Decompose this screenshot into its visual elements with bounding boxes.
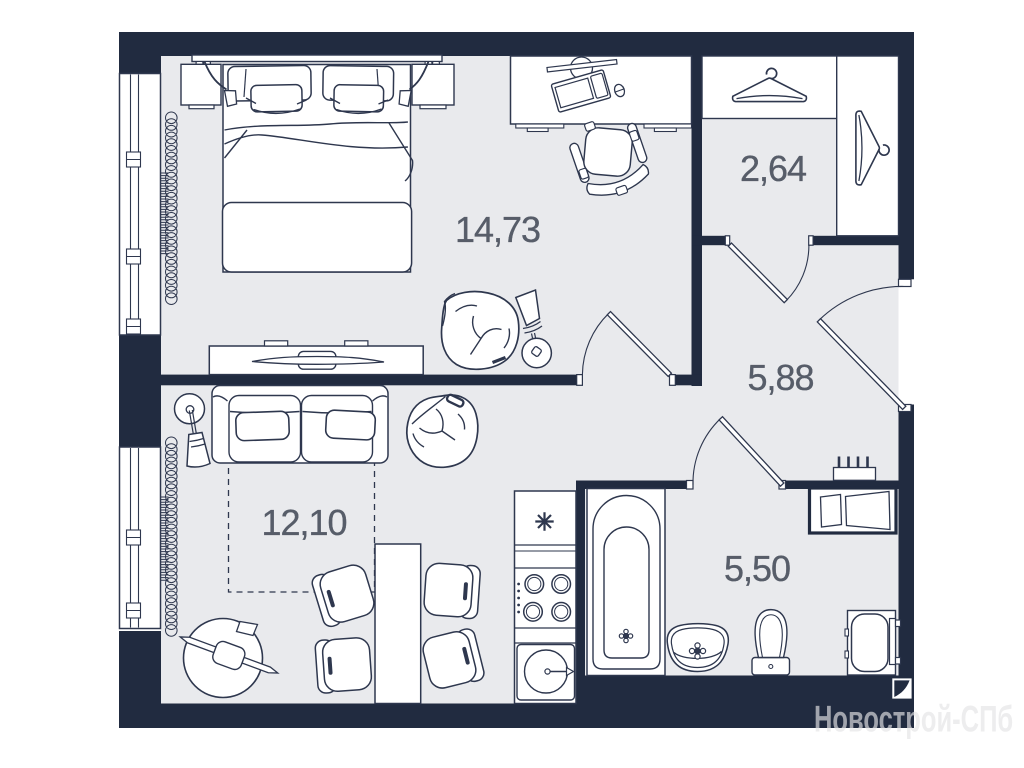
svg-text:14,73: 14,73 [455, 209, 540, 250]
svg-text:5,50: 5,50 [724, 548, 790, 589]
svg-text:5,88: 5,88 [747, 357, 813, 398]
svg-text:12,10: 12,10 [261, 502, 346, 543]
svg-text:2,64: 2,64 [740, 148, 806, 189]
svg-text:Новострой-СПб: Новострой-СПб [814, 698, 1013, 740]
